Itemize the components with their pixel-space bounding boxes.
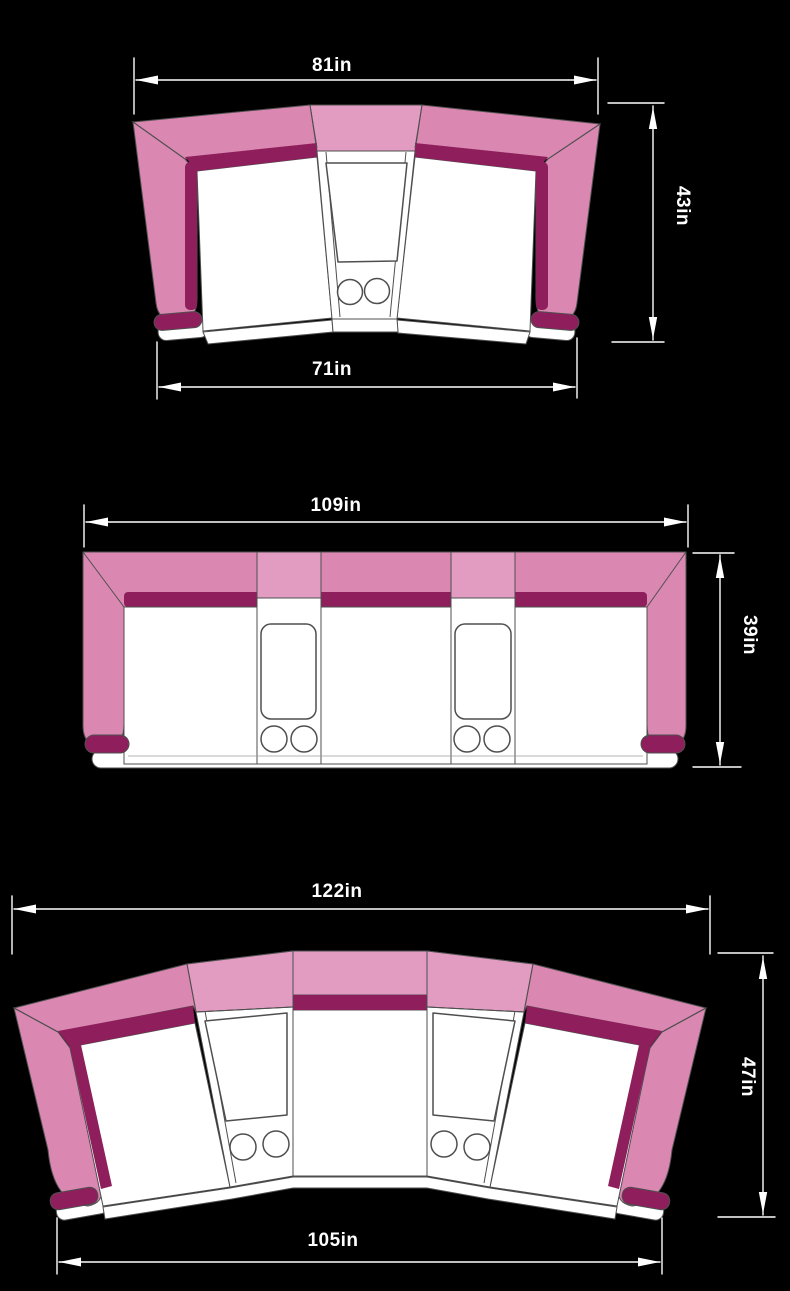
sofa2-cupholder <box>484 726 510 752</box>
sofa2-console1-back <box>257 552 321 598</box>
sofa2-left-arm-cap <box>85 735 129 753</box>
arrow-right-icon <box>553 383 575 392</box>
sofa2-back-stripe <box>124 592 647 607</box>
dim-label-front-width: 105in <box>307 1230 358 1251</box>
arrow-left-icon <box>59 1258 81 1267</box>
sofa3-stripe-middle <box>293 995 427 1010</box>
sofa1-arm-stripe-left <box>185 162 197 310</box>
sofa2-body <box>83 552 686 768</box>
dim-label-depth: 39in <box>739 615 760 655</box>
dim-label-back-width: 122in <box>311 881 362 902</box>
sofa2-cupholder <box>291 726 317 752</box>
sofa3-console2-back <box>427 951 533 1012</box>
dim-label-front-width: 71in <box>312 359 352 380</box>
sofa-dimension-diagrams: 81in 43in 71in <box>0 0 790 1291</box>
sofa2-right-arm-cap <box>641 735 685 753</box>
diagram-straight-sofa: 109in 39in <box>83 495 760 768</box>
sofa3-body <box>14 951 706 1221</box>
sofa2-dim-depth: 39in <box>693 553 760 767</box>
sofa1-console-tray <box>326 163 407 262</box>
arrow-left-icon <box>14 905 36 914</box>
sofa3-dim-back-width: 122in <box>12 881 710 954</box>
dim-label-back-width: 109in <box>310 495 361 516</box>
sofa2-console2-back <box>451 552 515 598</box>
sofa1-console-back <box>310 105 422 151</box>
sofa1-console-front <box>332 319 398 332</box>
sofa2-cupholder <box>261 726 287 752</box>
sofa3-dim-front-width: 105in <box>57 1218 662 1274</box>
arrow-up-icon <box>649 107 657 129</box>
sofa1-body <box>133 105 600 344</box>
sofa2-console1-tray <box>261 624 316 719</box>
sofa1-right-seat <box>397 157 536 331</box>
arrow-right-icon <box>686 905 708 914</box>
arrow-right-icon <box>664 518 686 527</box>
sofa2-seat-left <box>124 607 257 764</box>
dim-label-depth: 43in <box>672 186 693 226</box>
diagram-curved-sofa: 122in 47in 105in <box>12 881 775 1274</box>
sofa3-cupholder <box>464 1134 490 1160</box>
sofa1-dim-depth: 43in <box>608 103 693 342</box>
sofa3-cupholder <box>431 1131 457 1157</box>
diagram-loveseat: 81in 43in 71in <box>133 55 693 399</box>
arrow-left-icon <box>86 518 108 527</box>
arrow-down-icon <box>649 317 657 339</box>
sofa3-cupholder <box>230 1134 256 1160</box>
sofa1-dim-front-width: 71in <box>157 338 577 399</box>
dim-label-back-width: 81in <box>312 55 352 76</box>
sofa2-console2-tray <box>455 624 511 719</box>
sofa2-cupholder <box>454 726 480 752</box>
arrow-down-icon <box>716 742 724 764</box>
sofa1-left-seat <box>197 157 332 331</box>
arrow-left-icon <box>159 383 181 392</box>
sofa2-dim-width: 109in <box>84 495 688 547</box>
arrow-up-icon <box>759 957 767 979</box>
arrow-right-icon <box>574 76 596 85</box>
sofa3-console1-back <box>187 951 293 1012</box>
arrow-right-icon <box>638 1258 660 1267</box>
sofa2-seat-right <box>515 607 647 764</box>
sofa1-arm-stripe-right <box>536 162 548 310</box>
sofa3-seat-middle <box>293 1010 427 1176</box>
arrow-down-icon <box>759 1192 767 1214</box>
sofa1-cupholder-left <box>338 280 363 305</box>
sofa2-seat-middle <box>321 607 451 764</box>
arrow-left-icon <box>136 76 158 85</box>
dim-label-depth: 47in <box>737 1057 758 1097</box>
sofa3-center-back <box>293 951 427 995</box>
arrow-up-icon <box>716 556 724 578</box>
sofa1-cupholder-right <box>365 279 390 304</box>
sofa3-cupholder <box>263 1131 289 1157</box>
sofa3-dim-depth: 47in <box>718 953 775 1217</box>
diagram-canvas: 81in 43in 71in <box>0 0 790 1291</box>
